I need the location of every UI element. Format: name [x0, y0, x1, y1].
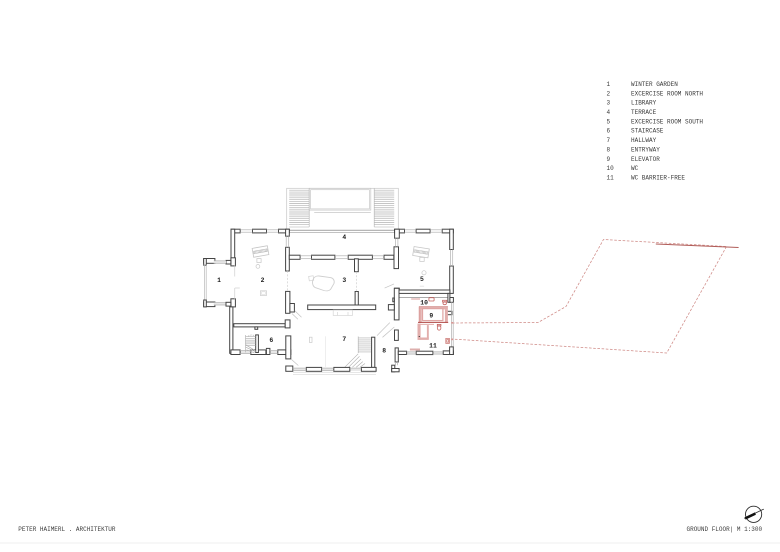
- svg-text:7: 7: [607, 137, 611, 144]
- svg-text:3: 3: [607, 100, 611, 107]
- svg-text:5: 5: [607, 118, 611, 125]
- svg-text:STAIRCASE: STAIRCASE: [631, 128, 664, 135]
- svg-text:3: 3: [342, 277, 346, 284]
- svg-text:10: 10: [607, 165, 615, 172]
- svg-text:8: 8: [607, 147, 611, 154]
- svg-text:PETER HAIMERL . ARCHITEKTUR: PETER HAIMERL . ARCHITEKTUR: [18, 526, 116, 533]
- svg-text:TERRACE: TERRACE: [631, 109, 657, 116]
- svg-text:ELEVATOR: ELEVATOR: [631, 156, 660, 163]
- svg-text:HALLWAY: HALLWAY: [631, 137, 657, 144]
- svg-text:2: 2: [261, 277, 265, 284]
- svg-text:LIBRARY: LIBRARY: [631, 100, 657, 107]
- svg-text:1: 1: [607, 81, 611, 88]
- svg-text:WC: WC: [631, 165, 639, 172]
- svg-text:9: 9: [429, 312, 433, 319]
- svg-text:2: 2: [607, 90, 611, 97]
- svg-text:10: 10: [420, 300, 428, 307]
- svg-text:EXCERCISE ROOM SOUTH: EXCERCISE ROOM SOUTH: [631, 118, 703, 125]
- svg-text:4: 4: [607, 109, 611, 116]
- svg-text:GROUND FLOOR| M 1:300: GROUND FLOOR| M 1:300: [687, 526, 763, 533]
- svg-text:EXCERCISE ROOM NORTH: EXCERCISE ROOM NORTH: [631, 90, 703, 97]
- svg-text:1: 1: [217, 277, 221, 284]
- svg-text:9: 9: [607, 156, 611, 163]
- svg-text:5: 5: [420, 276, 424, 283]
- svg-text:6: 6: [269, 337, 273, 344]
- svg-text:ENTRYWAY: ENTRYWAY: [631, 147, 660, 154]
- svg-text:7: 7: [342, 336, 346, 343]
- svg-text:11: 11: [429, 342, 437, 349]
- svg-text:4: 4: [342, 234, 346, 241]
- svg-text:WINTER GARDEN: WINTER GARDEN: [631, 81, 678, 88]
- svg-text:6: 6: [607, 128, 611, 135]
- svg-text:8: 8: [382, 347, 386, 354]
- svg-text:WC BARRIER-FREE: WC BARRIER-FREE: [631, 175, 685, 182]
- svg-text:11: 11: [607, 175, 615, 182]
